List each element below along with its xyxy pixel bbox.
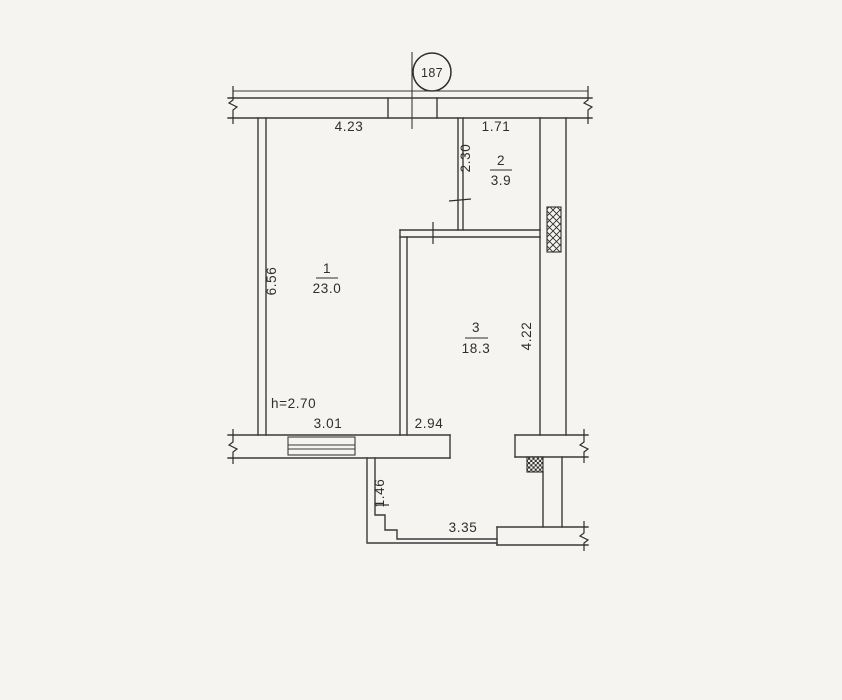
room-3-label: 3 18.3 [462,320,491,356]
room-1-label: 1 23.0 [313,261,342,296]
floor-plan: 187 [0,0,842,700]
vent-shaft-hatch [547,207,561,252]
wall-room2-room3 [400,222,540,244]
chimney-hatch [527,457,543,472]
dim-window-span: 3.01 [314,416,343,431]
apartment-number: 187 [421,66,443,80]
dim-room3-bottom: 2.94 [415,416,444,431]
window [288,437,355,455]
room-2-area: 3.9 [491,173,512,188]
outer-wall-bottom-left [228,429,450,464]
outer-wall-right [540,118,566,435]
outer-wall-top [228,86,592,124]
room-1-number: 1 [323,261,331,276]
room-1-area: 23.0 [313,281,342,296]
dim-top-right: 1.71 [482,119,511,134]
dim-hall-depth: 2.30 [458,144,473,173]
break-mark-mid-right [580,429,588,463]
dim-right-side: 4.22 [519,322,534,351]
partition-room1-room2 [449,118,471,230]
wall-band-upper-right [515,429,588,463]
room-2-number: 2 [497,153,505,168]
break-mark-low-right [580,521,588,551]
room-3-area: 18.3 [462,341,491,356]
wall-right-lower [527,457,562,527]
room-3-number: 3 [472,320,480,335]
dim-top-left: 4.23 [335,119,364,134]
dim-balcony-front: 3.35 [449,520,478,535]
dim-left-side: 6.56 [264,267,279,296]
partition-room1-room3 [400,230,407,435]
dim-balcony-side: 1.46 [372,479,387,508]
label-ceiling-height: h=2.70 [271,396,316,411]
break-mark-bottom-left [229,429,237,464]
dim-tick [449,199,471,201]
room-2-label: 2 3.9 [490,153,512,188]
